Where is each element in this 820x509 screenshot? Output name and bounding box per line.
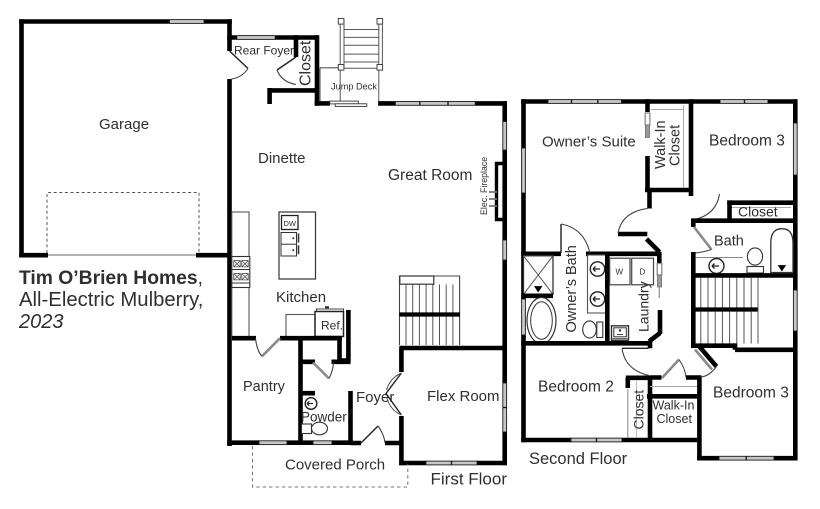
svg-text:Bath: Bath bbox=[714, 234, 744, 250]
svg-text:Bedroom 3: Bedroom 3 bbox=[709, 133, 785, 150]
svg-text:Walk-In: Walk-In bbox=[653, 399, 695, 413]
svg-text:Great Room: Great Room bbox=[388, 167, 472, 184]
svg-text:Jump Deck: Jump Deck bbox=[331, 82, 377, 92]
svg-text:Owner’s Bath: Owner’s Bath bbox=[564, 245, 580, 332]
svg-text:Covered Porch: Covered Porch bbox=[285, 457, 385, 474]
svg-text:Second Floor: Second Floor bbox=[529, 450, 628, 468]
svg-text:Elec. Fireplace: Elec. Fireplace bbox=[479, 157, 489, 215]
svg-text:Bedroom 2: Bedroom 2 bbox=[538, 379, 614, 396]
svg-text:All-Electric Mulberry,: All-Electric Mulberry, bbox=[19, 289, 203, 311]
svg-text:Powder: Powder bbox=[301, 410, 347, 425]
svg-text:Rear Foyer: Rear Foyer bbox=[234, 44, 294, 58]
svg-text:Kitchen: Kitchen bbox=[276, 289, 326, 306]
svg-text:Flex Room: Flex Room bbox=[427, 388, 500, 405]
svg-text:Garage: Garage bbox=[99, 116, 149, 133]
svg-text:DW: DW bbox=[284, 219, 297, 228]
svg-text:Pantry: Pantry bbox=[243, 379, 286, 395]
svg-text:Tim O’Brien Homes,: Tim O’Brien Homes, bbox=[19, 268, 203, 289]
svg-text:2023: 2023 bbox=[18, 311, 64, 333]
svg-text:First Floor: First Floor bbox=[431, 470, 508, 489]
svg-text:D: D bbox=[640, 268, 646, 277]
svg-text:Closet: Closet bbox=[668, 125, 684, 166]
svg-text:Closet: Closet bbox=[298, 40, 315, 86]
svg-text:Laundry: Laundry bbox=[636, 281, 652, 332]
svg-text:Ref.: Ref. bbox=[321, 319, 343, 333]
svg-text:Owner’s Suite: Owner’s Suite bbox=[542, 134, 636, 151]
svg-text:Closet: Closet bbox=[657, 412, 693, 426]
svg-text:Closet: Closet bbox=[738, 204, 778, 220]
svg-text:Closet: Closet bbox=[631, 390, 647, 430]
svg-text:Bedroom 3: Bedroom 3 bbox=[713, 385, 789, 402]
svg-text:Dinette: Dinette bbox=[258, 150, 306, 167]
svg-text:W: W bbox=[616, 268, 624, 277]
